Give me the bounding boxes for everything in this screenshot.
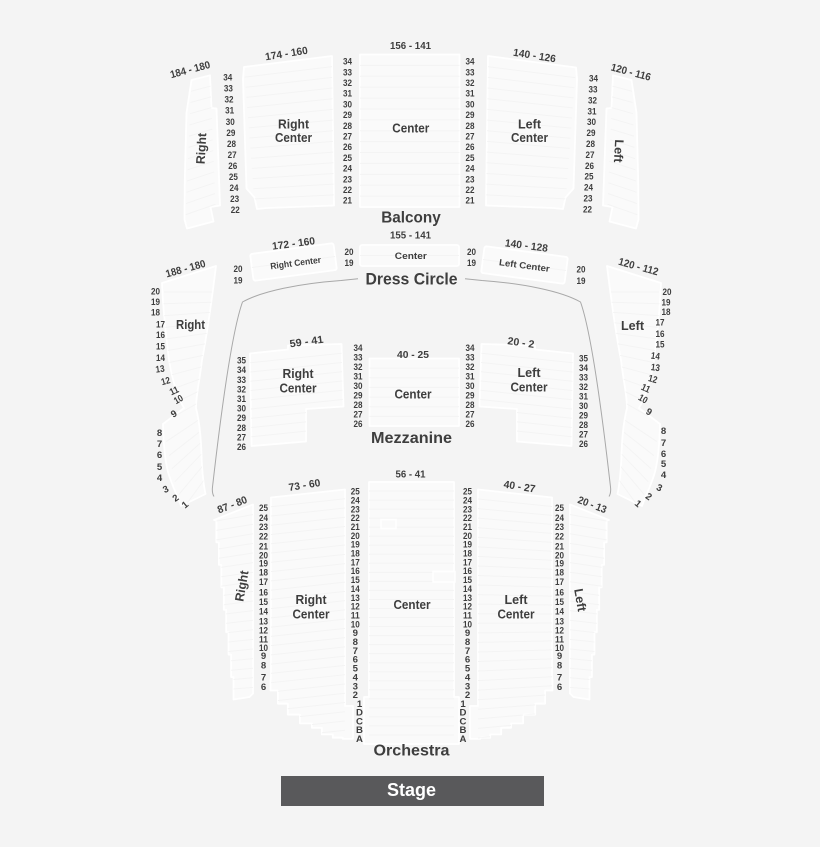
svg-text:Center: Center	[392, 122, 429, 136]
svg-text:25: 25	[466, 153, 476, 164]
svg-text:Left: Left	[505, 593, 529, 607]
svg-text:Right: Right	[278, 118, 310, 132]
svg-text:31: 31	[225, 106, 235, 117]
svg-text:19: 19	[151, 297, 160, 308]
svg-text:Center: Center	[280, 382, 317, 396]
svg-text:Right: Right	[176, 318, 206, 332]
svg-text:34: 34	[343, 57, 353, 68]
svg-text:6: 6	[557, 682, 562, 693]
svg-text:34: 34	[466, 57, 476, 68]
svg-text:27: 27	[343, 132, 352, 143]
svg-text:20: 20	[663, 287, 672, 298]
svg-text:15: 15	[656, 340, 666, 351]
svg-text:23: 23	[466, 174, 475, 185]
svg-text:33: 33	[589, 85, 598, 96]
svg-text:A: A	[460, 734, 467, 745]
svg-text:40 - 25: 40 - 25	[397, 349, 429, 361]
svg-text:8: 8	[261, 661, 267, 672]
svg-text:Orchestra: Orchestra	[374, 743, 450, 760]
svg-text:Center: Center	[511, 131, 548, 145]
svg-text:14: 14	[156, 353, 166, 364]
svg-text:19: 19	[577, 276, 586, 287]
svg-text:25: 25	[229, 172, 239, 183]
svg-text:19: 19	[345, 258, 354, 269]
svg-text:Left: Left	[518, 118, 542, 132]
svg-text:24: 24	[230, 183, 240, 194]
svg-text:20: 20	[234, 264, 243, 275]
svg-text:28: 28	[466, 121, 476, 132]
svg-text:26: 26	[228, 161, 237, 172]
svg-text:6: 6	[157, 450, 162, 461]
svg-text:23: 23	[343, 174, 352, 185]
svg-text:24: 24	[584, 183, 594, 194]
svg-text:16: 16	[656, 329, 665, 340]
svg-text:Dress Circle: Dress Circle	[366, 271, 458, 289]
svg-text:Center: Center	[394, 598, 431, 612]
svg-text:32: 32	[466, 78, 475, 89]
svg-text:6: 6	[261, 682, 266, 693]
svg-text:Left: Left	[621, 319, 645, 333]
svg-text:32: 32	[588, 95, 597, 106]
svg-text:29: 29	[226, 128, 235, 139]
svg-text:Left: Left	[611, 139, 626, 164]
svg-text:31: 31	[588, 106, 598, 117]
svg-text:26: 26	[237, 442, 246, 453]
svg-text:18: 18	[151, 308, 161, 319]
svg-text:24: 24	[466, 164, 476, 175]
svg-text:26: 26	[466, 142, 475, 153]
svg-text:28: 28	[586, 139, 596, 150]
svg-text:29: 29	[466, 110, 475, 121]
svg-text:22: 22	[583, 204, 592, 215]
svg-text:7: 7	[157, 439, 162, 450]
svg-text:28: 28	[227, 139, 237, 150]
svg-text:26: 26	[343, 142, 352, 153]
svg-text:13: 13	[155, 364, 165, 376]
svg-text:28: 28	[343, 121, 353, 132]
svg-text:18: 18	[662, 307, 672, 318]
svg-text:26: 26	[585, 161, 594, 172]
svg-text:23: 23	[584, 194, 593, 205]
svg-text:26: 26	[354, 419, 363, 430]
svg-text:Right: Right	[194, 132, 210, 164]
svg-text:Center: Center	[293, 608, 330, 622]
svg-text:8: 8	[157, 428, 163, 439]
svg-text:Center: Center	[395, 251, 427, 262]
svg-text:21: 21	[343, 196, 353, 207]
svg-text:Right: Right	[283, 367, 315, 381]
svg-text:16: 16	[156, 330, 165, 341]
svg-text:27: 27	[586, 150, 595, 161]
svg-text:33: 33	[343, 67, 352, 78]
svg-text:8: 8	[661, 426, 667, 437]
svg-text:19: 19	[234, 276, 243, 287]
svg-text:30: 30	[226, 117, 235, 128]
svg-text:17: 17	[259, 577, 268, 588]
svg-text:26: 26	[579, 439, 588, 450]
svg-text:4: 4	[157, 473, 163, 484]
svg-text:22: 22	[466, 185, 475, 196]
svg-text:22: 22	[231, 205, 240, 216]
svg-text:29: 29	[343, 110, 352, 121]
svg-text:155 - 141: 155 - 141	[390, 230, 431, 242]
svg-text:29: 29	[587, 128, 596, 139]
svg-text:31: 31	[466, 89, 476, 100]
svg-text:Center: Center	[395, 388, 432, 402]
svg-text:20: 20	[467, 247, 476, 258]
svg-text:21: 21	[466, 196, 476, 207]
svg-text:5: 5	[661, 459, 667, 470]
svg-text:31: 31	[343, 89, 353, 100]
svg-text:17: 17	[156, 320, 165, 331]
svg-text:20: 20	[345, 247, 354, 258]
svg-text:20: 20	[577, 265, 586, 276]
svg-text:26: 26	[466, 419, 475, 430]
svg-text:19: 19	[467, 258, 476, 269]
svg-text:30: 30	[466, 99, 475, 110]
svg-text:5: 5	[157, 462, 163, 473]
svg-text:Balcony: Balcony	[381, 210, 441, 227]
svg-text:27: 27	[466, 132, 475, 143]
svg-text:13: 13	[650, 362, 660, 374]
svg-text:17: 17	[555, 577, 564, 588]
svg-text:Center: Center	[511, 381, 548, 395]
svg-text:33: 33	[466, 67, 475, 78]
svg-text:30: 30	[343, 99, 352, 110]
svg-text:Center: Center	[498, 608, 535, 622]
svg-text:20: 20	[151, 287, 160, 298]
svg-text:Left: Left	[518, 366, 542, 380]
svg-text:A: A	[356, 734, 363, 745]
svg-text:32: 32	[343, 78, 352, 89]
svg-text:4: 4	[661, 470, 667, 481]
svg-text:32: 32	[224, 95, 233, 106]
svg-text:22: 22	[343, 185, 352, 196]
svg-text:25: 25	[585, 172, 595, 183]
svg-text:156 - 141: 156 - 141	[390, 40, 431, 52]
svg-text:15: 15	[156, 342, 166, 353]
svg-text:30: 30	[587, 117, 596, 128]
svg-text:Stage: Stage	[387, 779, 436, 800]
svg-text:8: 8	[557, 661, 563, 672]
svg-text:Center: Center	[275, 131, 312, 145]
svg-text:56 - 41: 56 - 41	[396, 469, 426, 481]
svg-text:27: 27	[228, 150, 237, 161]
svg-text:23: 23	[230, 194, 239, 205]
svg-text:25: 25	[343, 153, 353, 164]
svg-text:7: 7	[661, 438, 666, 449]
svg-text:34: 34	[589, 74, 599, 85]
svg-text:24: 24	[343, 164, 353, 175]
svg-text:Right: Right	[296, 593, 328, 607]
svg-text:17: 17	[656, 318, 665, 329]
svg-text:33: 33	[224, 84, 233, 95]
svg-text:Mezzanine: Mezzanine	[371, 430, 452, 447]
svg-text:34: 34	[223, 73, 233, 84]
